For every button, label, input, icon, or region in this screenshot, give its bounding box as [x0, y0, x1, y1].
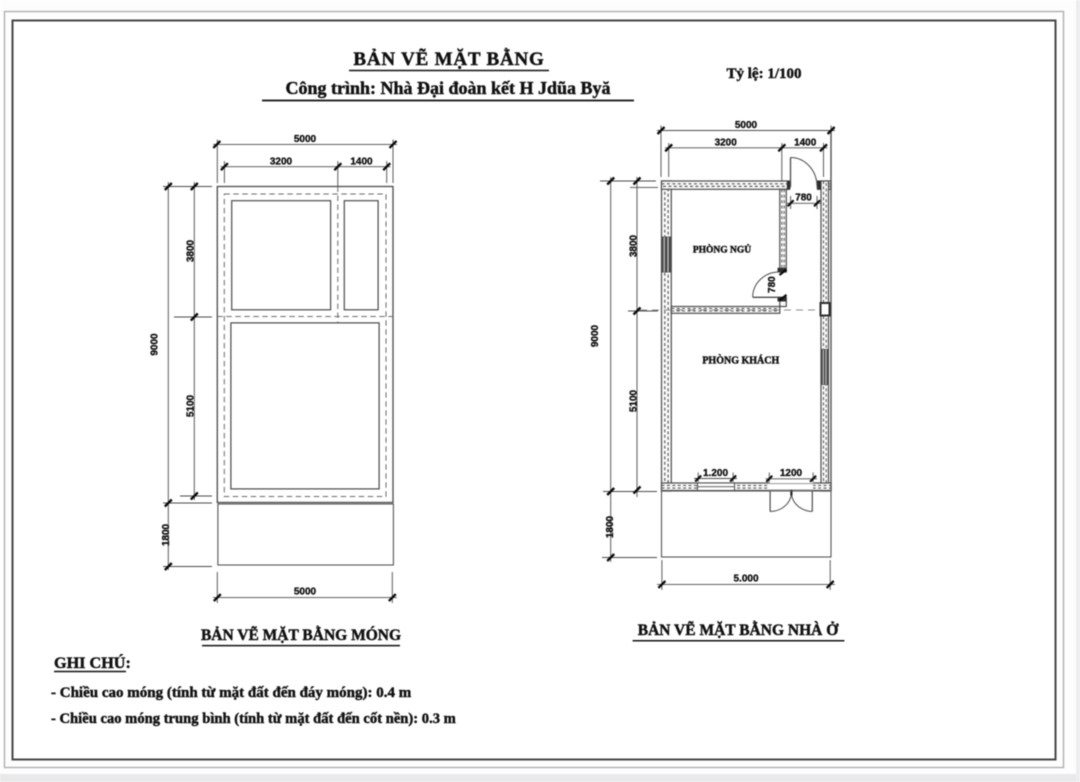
- svg-text:- Chiều cao móng trung bình (t: - Chiều cao móng trung bình (tính từ mặt…: [51, 711, 456, 727]
- svg-text:PHÒNG KHÁCH: PHÒNG KHÁCH: [702, 355, 779, 367]
- svg-text:5000: 5000: [294, 587, 317, 598]
- svg-text:5100: 5100: [186, 394, 197, 417]
- svg-text:GHI CHÚ:: GHI CHÚ:: [54, 653, 131, 672]
- svg-text:3200: 3200: [270, 156, 293, 167]
- svg-text:3800: 3800: [186, 239, 197, 262]
- svg-text:BẢN VẼ MẶT BẰNG MÓNG: BẢN VẼ MẶT BẰNG MÓNG: [201, 626, 401, 644]
- svg-text:PHÒNG NGỦ: PHÒNG NGỦ: [693, 244, 751, 256]
- svg-text:3800: 3800: [629, 234, 640, 257]
- svg-text:1.200: 1.200: [703, 468, 728, 479]
- svg-text:9000: 9000: [590, 324, 601, 347]
- svg-text:3200: 3200: [715, 137, 738, 148]
- svg-text:5000: 5000: [735, 120, 758, 131]
- svg-text:1400: 1400: [794, 137, 817, 148]
- svg-text:1200: 1200: [780, 468, 803, 479]
- svg-text:5.000: 5.000: [733, 574, 758, 585]
- svg-text:1800: 1800: [605, 515, 616, 538]
- svg-text:5100: 5100: [629, 389, 640, 412]
- svg-text:Công trình: Nhà Đại đoàn kết H: Công trình: Nhà Đại đoàn kết H Jdũa Byă: [285, 78, 610, 98]
- svg-text:5000: 5000: [294, 134, 317, 145]
- svg-text:1400: 1400: [350, 156, 373, 167]
- svg-text:BẢN VẼ MẶT BẰNG NHÀ Ở: BẢN VẼ MẶT BẰNG NHÀ Ở: [638, 621, 839, 639]
- svg-text:780: 780: [767, 276, 778, 293]
- svg-text:1800: 1800: [161, 523, 172, 546]
- svg-text:Tỷ lệ: 1/100: Tỷ lệ: 1/100: [727, 66, 802, 82]
- svg-text:BẢN VẼ MẶT BẰNG: BẢN VẼ MẶT BẰNG: [353, 48, 544, 70]
- svg-text:9000: 9000: [150, 333, 161, 356]
- svg-text:- Chiều cao móng (tính từ mặt: - Chiều cao móng (tính từ mặt đất đến đá…: [51, 685, 412, 701]
- svg-text:780: 780: [795, 193, 812, 204]
